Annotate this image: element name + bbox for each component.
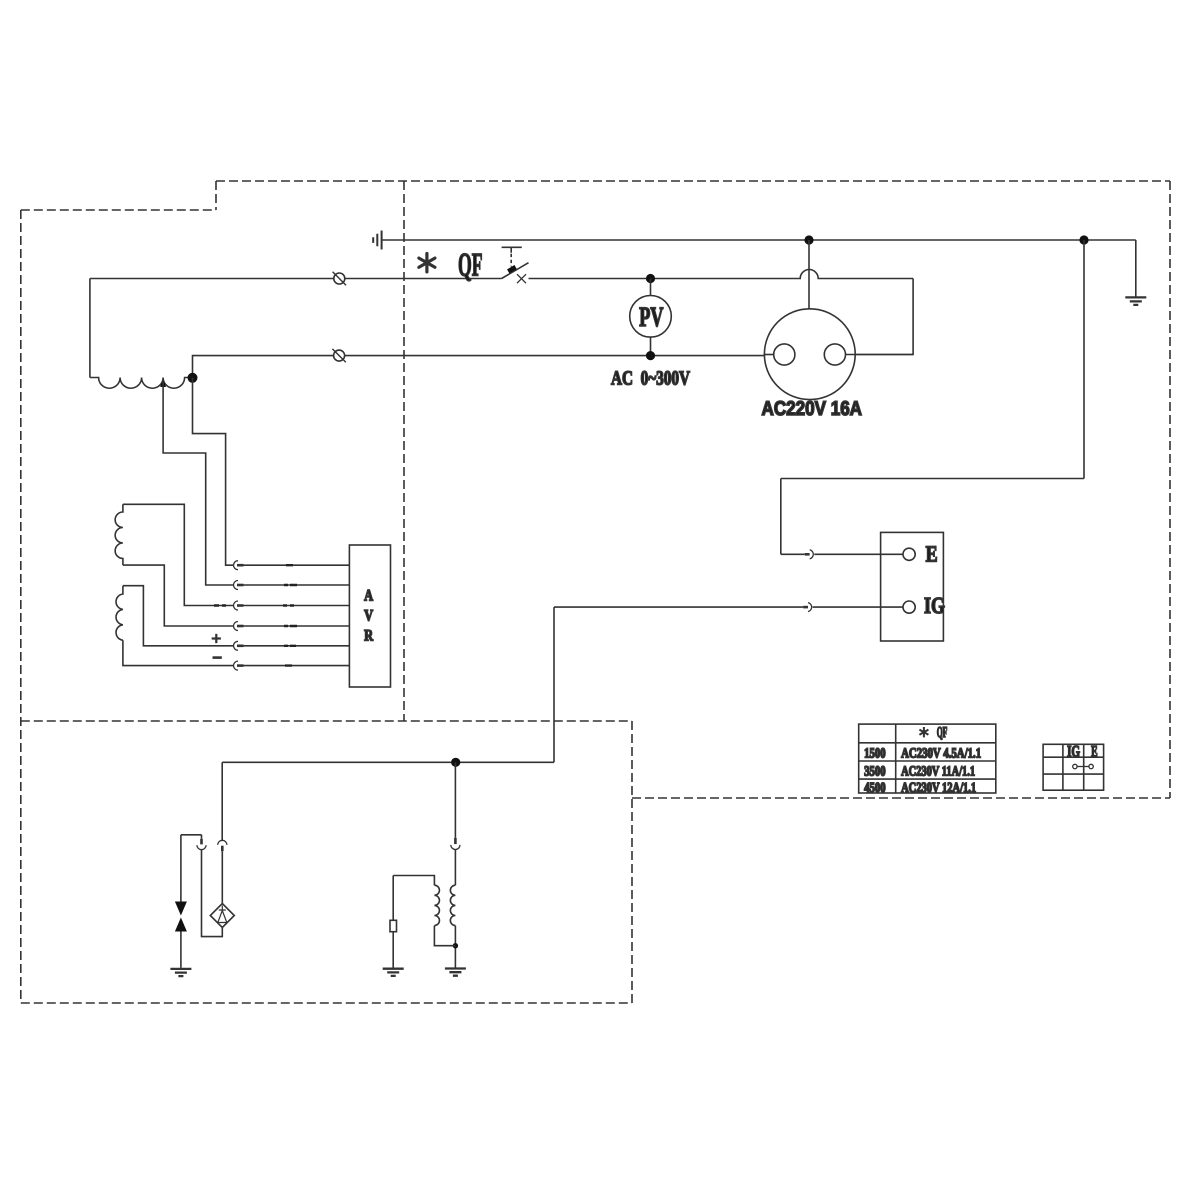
svg-text:IG: IG <box>1067 743 1080 760</box>
svg-text:3500: 3500 <box>864 765 886 780</box>
svg-text:AC230V 12A/1.1: AC230V 12A/1.1 <box>901 781 976 796</box>
svg-text:QF: QF <box>937 725 948 741</box>
svg-text:AC230V 4.5A/1.1: AC230V 4.5A/1.1 <box>901 746 981 761</box>
svg-text:R: R <box>364 628 373 645</box>
svg-text:AC 0~300V: AC 0~300V <box>611 367 690 389</box>
svg-text:PV: PV <box>639 302 663 333</box>
svg-text:IG: IG <box>924 593 945 618</box>
svg-text:AC220V 16A: AC220V 16A <box>762 398 863 420</box>
svg-text:A: A <box>364 588 373 605</box>
svg-text:E: E <box>1091 743 1098 760</box>
svg-text:1500: 1500 <box>864 746 886 761</box>
svg-text:AC230V 11A/1.1: AC230V 11A/1.1 <box>901 765 975 780</box>
svg-text:V: V <box>364 608 373 625</box>
svg-text:E: E <box>926 542 938 567</box>
svg-text:4500: 4500 <box>864 781 886 796</box>
svg-text:QF: QF <box>458 247 483 283</box>
